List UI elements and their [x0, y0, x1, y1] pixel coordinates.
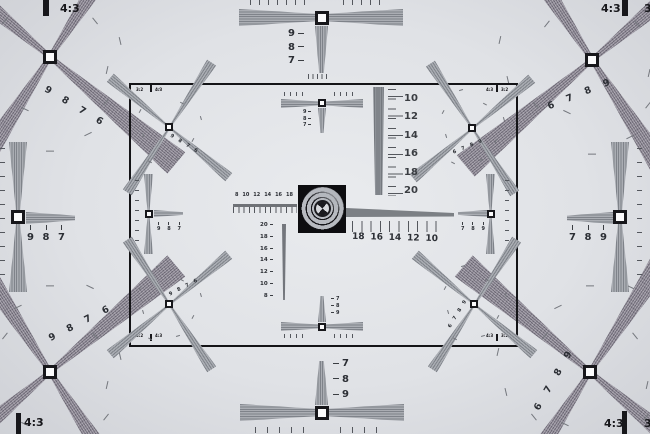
aspect-frame-bar [622, 0, 628, 16]
aspect-ratio-label-partial-bottom: 3 [644, 417, 650, 430]
tick-dash [531, 414, 537, 421]
ruler-number: 8 [264, 293, 273, 299]
registration-square [315, 11, 329, 25]
tick-dash [497, 347, 500, 355]
aspect-frame-bar [16, 413, 21, 434]
tick-marks [135, 180, 139, 250]
tick-marks [233, 207, 297, 213]
tick-marks [284, 92, 308, 96]
aspect-ratio-label-bottom-left: 4:3 [24, 416, 44, 429]
inner-aspect-label: 4:3 [486, 333, 493, 338]
tick-dash [46, 285, 54, 286]
resolution-scale-left: 9 8 7 [27, 225, 65, 243]
scale-number: 7 [333, 358, 349, 369]
registration-square [468, 124, 476, 132]
vertical-wedge [315, 26, 328, 73]
tick-dash [105, 381, 108, 389]
scale-number: 7 [331, 296, 339, 302]
ruler-number: 14 [389, 233, 402, 243]
ruler-number: 14 [264, 192, 271, 198]
scale-number: 9 [482, 222, 485, 232]
tick-dash [104, 413, 110, 420]
registration-square [43, 50, 57, 64]
horizontal-wedge [567, 212, 613, 224]
ruler-number: 16 [404, 148, 418, 159]
registration-square [165, 123, 173, 131]
inner-aspect-label: 4:3 [155, 333, 162, 338]
ruler-number: 18 [352, 232, 365, 242]
registration-square [487, 210, 495, 218]
scale-number: 9 [303, 109, 311, 115]
scale-number: 8 [585, 225, 592, 243]
ruler-number: 18 [404, 167, 418, 178]
scale-number: 7 [58, 225, 65, 243]
ruler-number: 10 [260, 281, 273, 287]
ruler-number: 10 [425, 234, 438, 244]
tick-dash [119, 37, 122, 45]
tick-marks [284, 334, 308, 338]
registration-square [165, 300, 173, 308]
inner-aspect-label: 3:2 [501, 87, 508, 92]
tick-dash [87, 285, 95, 290]
center-ruler-down: 20 18 16 14 12 10 8 [260, 222, 273, 299]
tick-marks [308, 74, 328, 79]
ruler-number: 14 [404, 130, 418, 141]
registration-square [318, 99, 326, 107]
resolution-scale-right: 7 8 9 [569, 225, 607, 243]
scale-number: 7 [569, 225, 576, 243]
aspect-frame-bar [43, 0, 49, 16]
tick-marks [334, 92, 358, 96]
scale-number: 7 [303, 122, 311, 128]
tick-dash [2, 333, 8, 340]
aspect-ratio-label-top-right: 4:3 [601, 2, 621, 15]
registration-square [315, 406, 329, 420]
tick-marks [352, 221, 444, 232]
inner-aspect-label: 3:2 [136, 87, 143, 92]
tick-dash [588, 153, 596, 154]
scale-number: 8 [303, 116, 311, 122]
ruler-number: 20 [404, 185, 418, 196]
tick-marks [388, 96, 403, 196]
ruler-number: 16 [275, 192, 282, 198]
scale-number: 8 [167, 222, 170, 232]
ruler-number: 12 [260, 269, 273, 275]
scale-number: 8 [331, 303, 339, 309]
aspect-frame-bar [496, 85, 498, 92]
horizontal-wedge [26, 212, 75, 224]
tick-dash [555, 305, 563, 310]
tick-dash [84, 132, 92, 137]
registration-square [585, 53, 599, 67]
scale-number: 9 [27, 225, 34, 243]
tick-dash [586, 285, 594, 286]
scale-number: 8 [471, 222, 474, 232]
scale-number: 8 [288, 42, 304, 53]
inner-resolution-scale-top: 9 8 7 [303, 109, 311, 128]
registration-square [11, 210, 25, 224]
registration-square [318, 323, 326, 331]
center-ruler-left: 8 10 12 14 16 18 [235, 192, 293, 198]
ruler-number: 14 [260, 257, 273, 263]
tick-marks [637, 148, 642, 288]
scale-number: 7 [461, 222, 464, 232]
scale-number: 9 [157, 222, 160, 232]
tick-dash [563, 110, 571, 115]
inner-resolution-scale-left: 9 8 7 [157, 222, 181, 232]
inner-resolution-scale-bottom: 7 8 9 [331, 296, 339, 316]
tick-marks [343, 0, 385, 5]
tick-marks [0, 148, 5, 288]
scale-number: 8 [43, 225, 50, 243]
registration-square [613, 210, 627, 224]
ruler-number: 16 [260, 246, 273, 252]
inner-resolution-scale-right: 7 8 9 [461, 222, 485, 232]
tick-dash [645, 381, 648, 389]
resolution-scale-bottom: 7 8 9 [333, 358, 349, 400]
tick-marks [250, 0, 305, 5]
ruler-number: 18 [286, 192, 293, 198]
ruler-number: 12 [407, 233, 420, 243]
resolution-test-chart: 9 8 7 6 6 7 8 9 9 8 7 6 6 7 8 9 4:3 4:3 … [0, 0, 650, 434]
tick-dash [46, 150, 54, 151]
tick-dash [499, 35, 502, 43]
zone-plate-spiral [301, 187, 344, 230]
ruler-number: 10 [404, 93, 418, 104]
tick-dash [646, 101, 650, 108]
registration-square [583, 365, 597, 379]
aspect-frame-bar [622, 411, 627, 434]
ruler-number: 18 [260, 234, 273, 240]
scale-number: 9 [333, 389, 349, 400]
inner-aspect-label: 4:3 [486, 87, 493, 92]
scale-number: 9 [288, 28, 304, 39]
ruler-number: 12 [404, 111, 418, 122]
registration-square [470, 300, 478, 308]
aspect-frame-bar [496, 334, 498, 341]
tick-marks [340, 427, 385, 433]
tick-marks [255, 427, 307, 433]
ruler-number: 10 [242, 192, 249, 198]
scale-number: 7 [288, 55, 304, 66]
tick-dash [505, 387, 508, 395]
aspect-ratio-label-bottom-right: 4:3 [604, 417, 624, 430]
tick-marks [505, 180, 509, 250]
ruler-number: 8 [235, 192, 238, 198]
scale-number: 9 [600, 225, 607, 243]
center-ruler-up: 10 12 14 16 18 20 [404, 93, 418, 196]
resolution-scale-top: 9 8 7 [288, 28, 304, 66]
scale-number: 7 [178, 222, 181, 232]
registration-square [43, 365, 57, 379]
tick-dash [105, 66, 108, 74]
ruler-number: 16 [370, 232, 383, 242]
scale-number: 8 [333, 374, 349, 385]
aspect-ratio-label-partial-top: 3 [644, 2, 650, 15]
tick-marks [334, 334, 358, 338]
aspect-frame-bar [150, 85, 152, 92]
aspect-ratio-label-top-left: 4:3 [60, 2, 80, 15]
tick-dash [92, 17, 98, 24]
scale-number: 9 [331, 310, 339, 316]
ruler-number: 12 [253, 192, 260, 198]
registration-square [145, 210, 153, 218]
tick-dash [632, 332, 638, 339]
tick-dash [544, 21, 550, 28]
vertical-wedge [315, 361, 328, 405]
ruler-number: 20 [260, 222, 273, 228]
